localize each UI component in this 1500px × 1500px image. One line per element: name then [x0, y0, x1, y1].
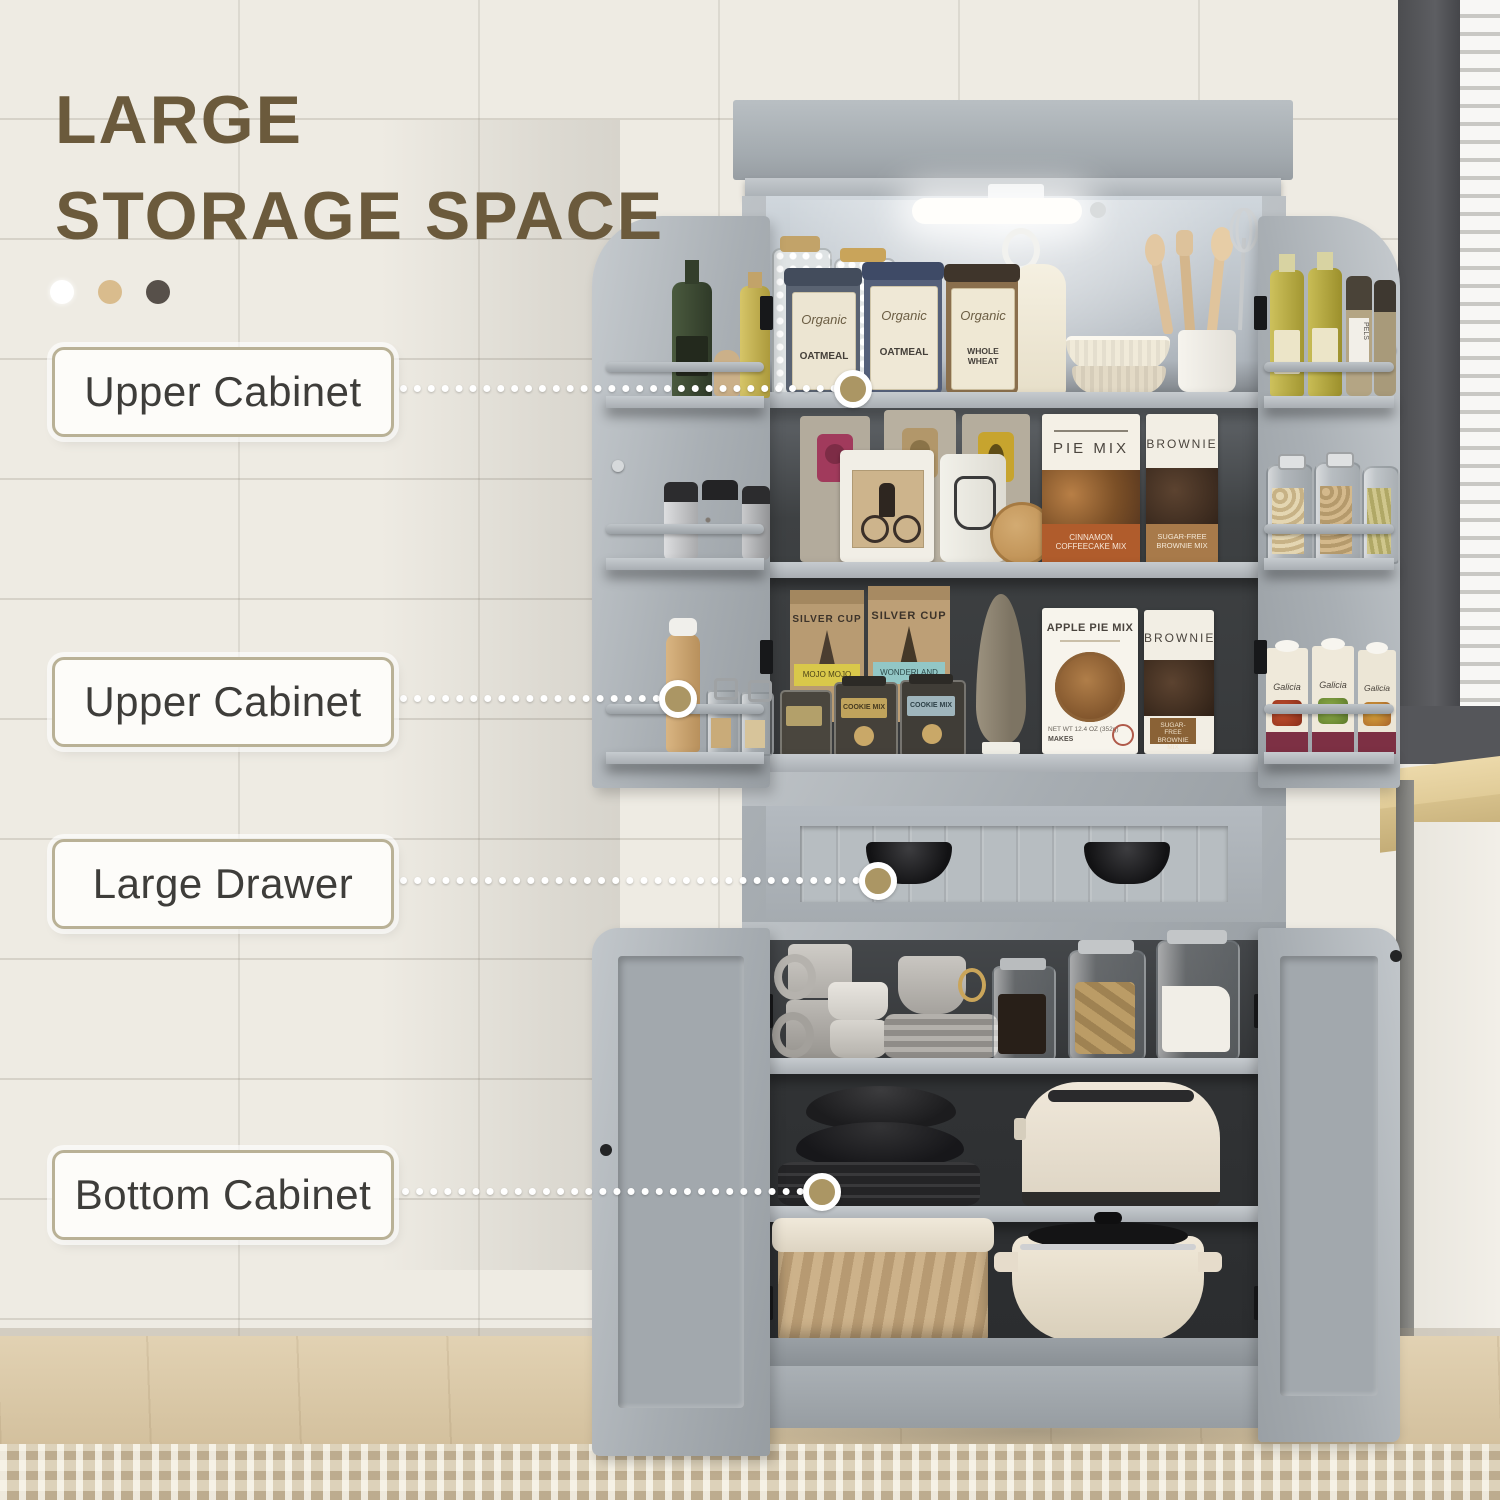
grinder-cap — [664, 482, 698, 502]
cookie-art — [854, 726, 874, 746]
canister-lid — [784, 268, 862, 286]
bottle-neck — [685, 260, 699, 284]
brownie-photo — [1146, 468, 1218, 524]
flour-fill — [1162, 986, 1230, 1052]
callout-label: Bottom Cabinet — [75, 1171, 372, 1219]
leader-end-large-drawer — [859, 862, 897, 900]
pasta-fill — [1367, 488, 1391, 554]
coffee-bean-jar — [992, 966, 1056, 1062]
right-rack-pasta-jar-1 — [1266, 464, 1314, 564]
cookie-photo — [1055, 652, 1125, 722]
accent-dot-tan — [98, 280, 122, 304]
apple-pie-mix-box: APPLE PIE MIX NET WT 12.4 OZ (352g) MAKE… — [1042, 608, 1138, 754]
brownie-photo — [1144, 660, 1214, 716]
bowl-stack-bottom — [1072, 366, 1166, 394]
jar-clamp — [748, 680, 772, 702]
right-rack-pepper-grinder-1: PELS — [1346, 276, 1372, 396]
brownie-box-upper: BROWNIE SUGAR-FREE BROWNIE MIX — [1146, 414, 1218, 562]
hinge-upper-right-bottom — [1254, 640, 1267, 674]
left-rack-rail-2 — [606, 524, 764, 534]
canister-lid — [944, 264, 1020, 282]
cracker-jar — [1068, 950, 1146, 1062]
left-rack-grinder-3 — [742, 486, 770, 560]
accent-dot-white — [50, 280, 74, 304]
right-rack-board-2 — [1264, 558, 1394, 570]
grinder-cap — [742, 486, 770, 504]
flour-jar — [1156, 940, 1240, 1062]
cookie-art — [922, 724, 942, 744]
jar-clamp — [714, 678, 738, 700]
hinge-upper-right-top — [1254, 296, 1267, 330]
right-rack-pepper-grinder-2 — [1374, 280, 1396, 396]
left-rack-spice-jar-1 — [706, 690, 740, 756]
canister-label: Organic WHOLE WHEAT — [951, 288, 1015, 390]
saucer-stack — [884, 1014, 998, 1058]
brownie-band: SUGAR-FREE BROWNIE MIX — [1150, 718, 1196, 744]
coffee-beans-fill — [998, 994, 1046, 1054]
brownie-title: BROWNIE — [1146, 438, 1218, 452]
right-rack-oil-bottle-2 — [1308, 268, 1342, 396]
accent-dot-charcoal — [146, 280, 170, 304]
lower-shelf-1 — [766, 1058, 1262, 1074]
cookie-jar-tan: COOKIE MIX — [834, 682, 898, 758]
upper-left-door-knob — [612, 460, 624, 472]
door-recessed-panel — [618, 956, 744, 1408]
carton-cap — [1366, 642, 1388, 654]
right-rack-pasta-jar-3 — [1362, 466, 1400, 564]
leader-line-bottom-cabinet — [402, 1188, 804, 1195]
left-rack-spice-jar-2 — [740, 692, 774, 756]
jar-metal-lid — [1078, 940, 1134, 954]
jar-lid — [842, 676, 886, 686]
spice-fill — [745, 720, 765, 748]
left-rack-rail-1 — [606, 362, 764, 372]
brownie-band-text: SUGAR-FREE BROWNIE MIX — [1146, 533, 1218, 550]
teacup-gold-handle — [898, 956, 966, 1014]
canister-brand-text: Organic — [793, 313, 855, 328]
white-cup-stack — [828, 982, 892, 1058]
right-rack-board-1 — [1264, 396, 1394, 408]
grinder-cap — [702, 480, 738, 500]
right-rack-pasta-jar-2 — [1314, 462, 1362, 564]
door-recessed-panel — [1280, 956, 1378, 1396]
toaster-base — [1022, 1192, 1220, 1206]
apple-pie-title: APPLE PIE MIX — [1042, 622, 1138, 635]
bottle-cap — [1279, 254, 1295, 272]
leader-end-upper-cabinet-2 — [659, 680, 697, 718]
bag-brand-text: SILVER CUP — [868, 610, 950, 623]
mug-handle — [774, 954, 816, 1000]
bag-brand-text: SILVER CUP — [790, 614, 864, 626]
leader-line-large-drawer — [400, 877, 860, 884]
canister-name-text: OATMEAL — [871, 347, 937, 359]
carton-brand-text: Galicia — [1266, 682, 1308, 692]
bicycle-illustration — [852, 470, 924, 548]
decor-bottle — [1012, 264, 1066, 394]
window-sill — [1398, 706, 1500, 764]
bike-wheel — [861, 515, 889, 543]
carton-brand-text: Galicia — [1312, 680, 1354, 690]
canister-lid — [862, 262, 944, 280]
jar-bail-lid — [1278, 454, 1306, 470]
window-blinds — [1458, 0, 1500, 742]
callout-label: Upper Cabinet — [84, 678, 361, 726]
right-rack-rail-2 — [1264, 524, 1394, 534]
mug-handle — [772, 1012, 814, 1058]
leader-line-upper-cabinet-2 — [400, 695, 660, 702]
basket-linen-liner — [772, 1218, 994, 1252]
headline-line-2: STORAGE SPACE — [55, 168, 664, 264]
vase-stand — [982, 742, 1020, 754]
cup — [828, 982, 888, 1020]
candy-jar-cork — [780, 236, 820, 252]
bike-wheel — [893, 515, 921, 543]
left-rack-board-3 — [606, 752, 764, 764]
pot-lid-knob — [1094, 1212, 1122, 1224]
canister-label: Organic OATMEAL — [870, 286, 938, 390]
canister-name-text: OATMEAL — [793, 351, 855, 363]
right-rack-rail-3 — [1264, 704, 1394, 714]
leader-end-bottom-cabinet — [803, 1173, 841, 1211]
jar-label-text: COOKIE MIX — [841, 704, 887, 712]
cookie-jar-blue: COOKIE MIX — [900, 680, 966, 758]
carton-base-band — [1358, 732, 1396, 754]
wooden-utensils — [1140, 208, 1260, 334]
left-rack-grinder-1 — [664, 482, 698, 560]
jar-bail-lid — [1326, 452, 1354, 468]
jar-label: COOKIE MIX — [907, 696, 955, 716]
toaster-lever — [1014, 1118, 1026, 1140]
product-scene: Organic OATMEAL Organic OATMEAL Organic … — [0, 0, 1500, 1500]
brownie-box-shelf3: BROWNIE SUGAR-FREE BROWNIE MIX — [1144, 610, 1214, 754]
wire-bail-clamp — [954, 476, 996, 530]
bike-rider — [879, 483, 895, 517]
bicycle-tin — [840, 450, 934, 562]
callout-label: Upper Cabinet — [84, 368, 361, 416]
brownie-title: BROWNIE — [1144, 632, 1214, 646]
jar-label: COOKIE MIX — [841, 698, 887, 718]
upper-shelf-3 — [766, 754, 1262, 772]
lower-right-door-knob — [1390, 950, 1402, 962]
hinge-upper-left-top — [760, 296, 773, 330]
utensil-crock — [1178, 330, 1236, 392]
canister-oatmeal-2: Organic OATMEAL — [864, 262, 942, 394]
brownie-band-text: SUGAR-FREE BROWNIE MIX — [1150, 722, 1196, 752]
gold-handle — [958, 968, 986, 1002]
plinth — [742, 1366, 1286, 1428]
jar-label-text: COOKIE MIX — [907, 702, 955, 710]
apple-pie-subrule — [1060, 640, 1120, 642]
spice-fill — [711, 718, 731, 748]
pot-handle-left — [994, 1252, 1018, 1272]
candy-jar-2-lid — [840, 248, 886, 262]
pie-mix-photo — [1042, 470, 1140, 524]
hinge-upper-left-bottom — [760, 640, 773, 674]
headline: LARGE STORAGE SPACE — [55, 72, 664, 264]
toaster — [1022, 1082, 1220, 1206]
brownie-band: SUGAR-FREE BROWNIE MIX — [1146, 524, 1218, 562]
led-sensor — [1090, 202, 1106, 218]
callout-upper-cabinet-1: Upper Cabinet — [52, 347, 394, 437]
toaster-slot — [1048, 1090, 1194, 1102]
apple-pie-makes: MAKES — [1048, 736, 1073, 743]
right-rack-rail-1 — [1264, 362, 1394, 372]
canister-name-text: WHOLE WHEAT — [952, 347, 1014, 367]
canister-brand-text: Organic — [952, 309, 1014, 324]
jar-metal-lid — [1000, 958, 1046, 970]
leader-end-upper-cabinet-1 — [834, 370, 872, 408]
mid-rail-top — [742, 772, 1286, 806]
jar-lid — [909, 674, 953, 684]
bottle-cork — [748, 272, 762, 288]
galicia-carton-2: Galicia — [1312, 646, 1354, 754]
upper-shelf-2 — [766, 562, 1262, 578]
grinder-label-text: PELS — [1349, 322, 1369, 340]
apple-pie-weight: NET WT 12.4 OZ (352g) — [1048, 726, 1119, 733]
callout-label: Large Drawer — [93, 860, 353, 908]
crackers-fill — [1075, 982, 1135, 1054]
pot-rim — [1020, 1244, 1196, 1250]
pie-mix-title: PIE MIX — [1042, 440, 1140, 457]
mill-cap — [669, 618, 697, 636]
jar-label — [786, 706, 822, 726]
jar-metal-lid — [1167, 930, 1227, 944]
bag-fold — [790, 590, 864, 604]
crown-top — [733, 100, 1293, 180]
pie-mix-band-text: CINNAMON COFFEECAKE MIX — [1042, 533, 1140, 551]
canister-brand-text: Organic — [871, 309, 937, 324]
callout-large-drawer: Large Drawer — [52, 839, 394, 929]
apple-pie-badge — [1112, 724, 1134, 746]
window-frame — [1398, 0, 1460, 764]
headline-line-1: LARGE — [55, 72, 664, 168]
bottle-cap — [1317, 252, 1333, 270]
pasta-fill — [1320, 486, 1352, 554]
pie-mix-box: PIE MIX CINNAMON COFFEECAKE MIX — [1042, 414, 1140, 562]
dutch-oven — [1012, 1236, 1204, 1342]
left-rack-board-2 — [606, 558, 764, 570]
leader-line-upper-cabinet-1 — [400, 385, 838, 392]
pasta-fill — [1272, 488, 1304, 554]
callout-bottom-cabinet: Bottom Cabinet — [52, 1150, 394, 1240]
galicia-carton-1: Galicia — [1266, 648, 1308, 754]
right-rack-board-3 — [1264, 752, 1394, 764]
carton-cap — [1321, 638, 1345, 650]
pie-mix-band: CINNAMON COFFEECAKE MIX — [1042, 524, 1140, 562]
interior-floor — [766, 1338, 1262, 1366]
bag-fold — [868, 586, 950, 600]
left-rack-grinder-2 — [702, 480, 738, 560]
canister-whole-wheat: Organic WHOLE WHEAT — [946, 264, 1018, 394]
left-rack-bottle-green — [672, 282, 712, 398]
lower-left-door-knob — [600, 1144, 612, 1156]
wicker-basket — [778, 1228, 988, 1342]
carton-base-band — [1266, 732, 1308, 754]
carton-cap — [1275, 640, 1299, 652]
lower-right-door — [1258, 928, 1400, 1442]
cookie-jar-small — [780, 690, 832, 758]
cup — [830, 1020, 888, 1058]
right-rack-oil-bottle-1 — [1270, 270, 1304, 396]
drawer-face — [766, 806, 1262, 922]
callout-upper-cabinet-2: Upper Cabinet — [52, 657, 394, 747]
left-rack-board-1 — [606, 396, 764, 408]
carton-base-band — [1312, 732, 1354, 754]
pot-handle-right — [1198, 1252, 1222, 1272]
carton-brand-text: Galicia — [1358, 684, 1396, 694]
galicia-carton-3: Galicia — [1358, 650, 1396, 754]
led-light-bar — [912, 198, 1082, 224]
pie-mix-rule — [1054, 430, 1128, 432]
